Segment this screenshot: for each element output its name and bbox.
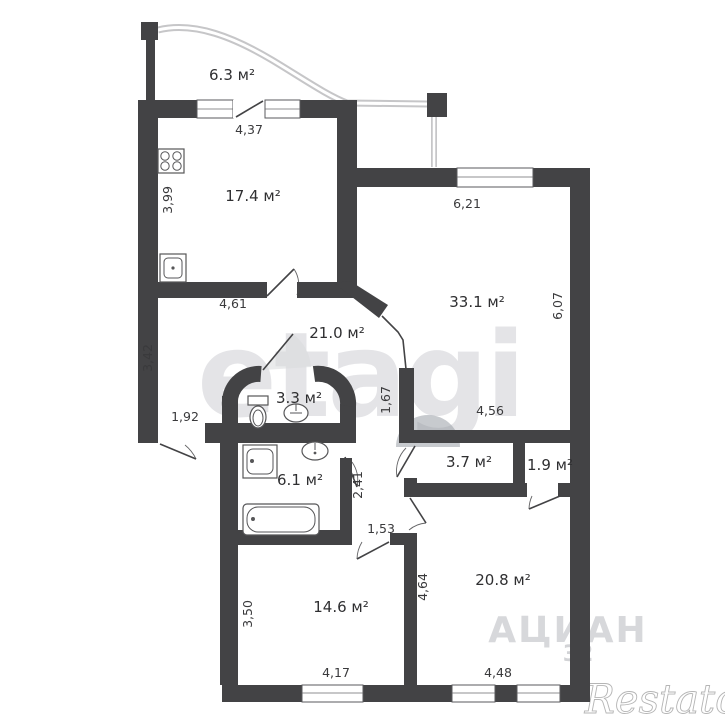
room-label-living: 33.1 м² (449, 293, 505, 311)
dim-living-bottom: 4,56 (476, 403, 504, 418)
dim-kitchen-side: 3,99 (160, 186, 175, 214)
storage-door-leaf (397, 446, 415, 477)
room2-door-arc (409, 523, 426, 530)
railing-curve-inner (158, 28, 427, 104)
dim-balcony-door: 4,37 (235, 122, 263, 137)
bathtub-icon (243, 504, 319, 535)
dim-room1-bottom: 4,17 (322, 665, 350, 680)
room-label-bathroom: 6.1 м² (277, 471, 323, 489)
shower-tray-icon (243, 445, 277, 478)
wall-rooms-divider (404, 545, 417, 685)
balcony-wall-stub (146, 40, 155, 100)
room-label-hall: 21.0 м² (309, 324, 365, 342)
watermark-restato: Restato (584, 677, 725, 723)
room2-door-leaf (410, 498, 426, 523)
room-label-wc: 3.3 м² (276, 389, 322, 407)
kitchen-sink-icon (160, 254, 186, 282)
balcony-pillar-right (427, 93, 447, 117)
room-label-closet: 1.9 м² (527, 456, 573, 474)
watermark-restato-text: Restato (584, 677, 725, 723)
wall-storage-bottom (404, 483, 527, 497)
dim-hall-side: 3,42 (140, 344, 155, 372)
wall-hall-right (399, 368, 414, 430)
bathroom-sink-icon (302, 442, 328, 460)
stove-icon (158, 149, 184, 173)
wall-left-lower (220, 443, 238, 685)
wall-closet-bottom-stub (558, 483, 572, 497)
window-room2-a (452, 685, 495, 702)
dim-living-side: 6,07 (550, 292, 565, 320)
dim-room1-side: 3,50 (240, 600, 255, 628)
room-label-balcony: 6.3 м² (209, 66, 255, 84)
room-label-room2: 20.8 м² (475, 571, 531, 589)
wall-kitchen-right (337, 118, 357, 288)
wall-storage-closet-divider (513, 443, 525, 483)
floor-plan-svg: etagi АЦИАН 32 Restato (0, 0, 725, 725)
wall-hall-bottom-corner (138, 423, 158, 443)
dim-hall-wall: 1,67 (378, 386, 393, 414)
wall-wc-right (340, 404, 356, 423)
dim-small-hall: 1,53 (367, 521, 395, 536)
dim-room2-side: 4,64 (415, 573, 430, 601)
window-room1 (302, 685, 363, 702)
toilet-icon (248, 396, 268, 428)
room-label-kitchen: 17.4 м² (225, 187, 281, 205)
dim-corridor: 2,41 (350, 471, 365, 499)
dim-kitchen-bottom: 4,61 (219, 296, 247, 311)
wall-outer-left (138, 100, 158, 443)
room-label-room1: 14.6 м² (313, 598, 369, 616)
room-label-storage: 3.7 м² (446, 453, 492, 471)
wall-hall-bottom (205, 423, 356, 443)
hall-exit-door-leaf (160, 444, 196, 459)
dim-living-top: 6,21 (453, 196, 481, 211)
balcony-pillar-left (141, 22, 158, 40)
wall-kitchen-bottom-left (158, 282, 267, 298)
closet-door-leaf (529, 496, 560, 509)
window-living (457, 168, 533, 187)
closet-door-arc (529, 496, 532, 509)
railing-curve (158, 28, 427, 104)
kitchen-door-leaf (267, 269, 294, 296)
dim-room2-bottom: 4,48 (484, 665, 512, 680)
wall-living-bottom (399, 430, 590, 443)
room1-door-leaf (357, 542, 389, 559)
dim-hall-door: 1,92 (171, 409, 199, 424)
floor-plan-page: etagi АЦИАН 32 Restato (0, 0, 725, 725)
balcony-railing (158, 28, 434, 167)
window-room2-b (517, 685, 560, 702)
